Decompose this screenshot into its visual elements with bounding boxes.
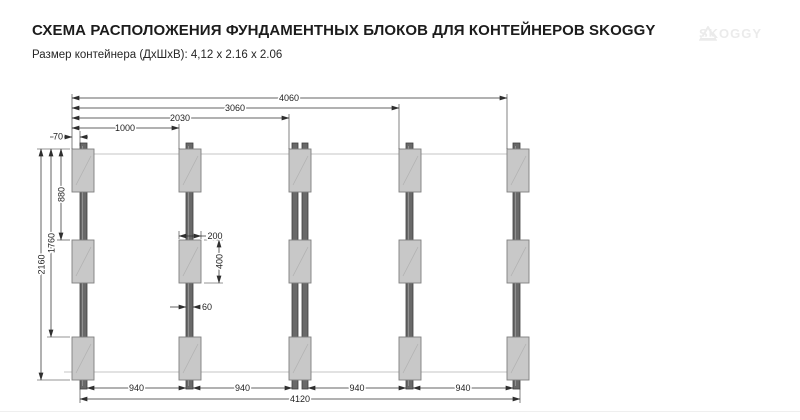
dim-top-4060: 4060 (279, 93, 299, 103)
slide-bottom-divider (0, 411, 800, 412)
foundation-block (72, 149, 94, 192)
foundation-blocks (72, 149, 529, 380)
foundation-block (399, 337, 421, 380)
foundation-block (289, 149, 311, 192)
dim-tape-width-60: 60 (202, 302, 212, 312)
dim-top-1000: 1000 (115, 123, 135, 133)
slide: { "header": { "title": "СХЕМА РАСПОЛОЖЕН… (0, 0, 800, 420)
dim-spacing-940-1: 940 (129, 383, 144, 393)
foundation-block (507, 240, 529, 283)
dim-top-2030: 2030 (170, 113, 190, 123)
dim-block-height-400: 400 (215, 254, 225, 269)
foundation-block (507, 337, 529, 380)
foundation-block (179, 240, 201, 283)
foundation-block (179, 149, 201, 192)
dim-block-width-200: 200 (208, 231, 223, 241)
dimension-lines (41, 98, 520, 399)
foundation-block (289, 240, 311, 283)
foundation-block (72, 240, 94, 283)
foundation-block (507, 149, 529, 192)
foundation-block (289, 337, 311, 380)
dim-edge-offset-70: 70 (53, 132, 63, 142)
dim-left-2160: 2160 (37, 254, 47, 274)
foundation-block (179, 337, 201, 380)
dim-spacing-940-2: 940 (235, 383, 250, 393)
foundation-block (399, 149, 421, 192)
foundation-diagram: 4060 3060 2030 1000 70 2160 1760 880 200… (0, 0, 800, 420)
dim-top-3060: 3060 (225, 103, 245, 113)
foundation-block (72, 337, 94, 380)
dim-bottom-total-4120: 4120 (290, 394, 310, 404)
foundation-block (399, 240, 421, 283)
dim-left-880: 880 (57, 187, 67, 202)
extension-lines (37, 94, 520, 403)
dim-spacing-940-3: 940 (349, 383, 364, 393)
dim-left-1760: 1760 (47, 233, 57, 253)
dim-spacing-940-4: 940 (455, 383, 470, 393)
